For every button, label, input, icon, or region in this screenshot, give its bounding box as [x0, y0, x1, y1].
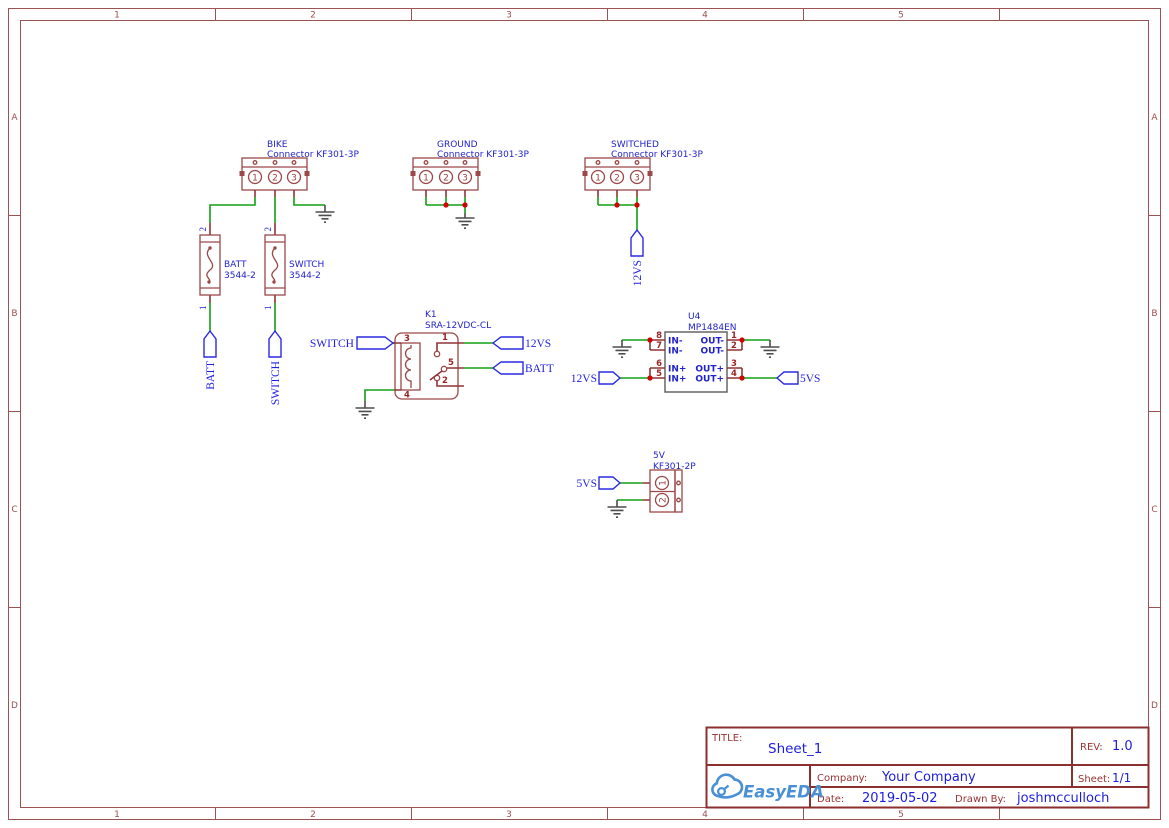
pin-number: 2 [198, 227, 208, 232]
junction-dot [634, 202, 639, 207]
pin-number: 2 [272, 174, 278, 184]
frame-col-label: 2 [310, 810, 316, 820]
pin-number: 1 [731, 331, 737, 341]
schematic-sheet: 1 2 3 4 5 1 2 3 4 5 A B C D A B C D [0, 0, 1169, 828]
frame-col-label: 4 [702, 810, 708, 820]
component-part: SRA-12VDC-CL [425, 321, 491, 331]
junction-dot [647, 337, 652, 342]
ground-symbols[interactable] [316, 205, 780, 517]
drawn-by-value: joshmcculloch [1016, 791, 1109, 806]
component-regulator-u4[interactable]: U4 MP1484EN 8 7 6 5 1 2 3 4 IN- IN- IN+ … [647, 312, 744, 392]
component-switched-connector[interactable]: SWITCHED Connector KF301-3P 1 2 3 [583, 140, 704, 208]
netflag-switch-fuse[interactable]: SWITCH [269, 331, 282, 405]
pin-number: 1 [198, 306, 208, 311]
wire-bike3-to-gnd[interactable] [294, 197, 325, 205]
frame-row-label: C [1151, 505, 1157, 515]
netflag-label: SWITCH [310, 338, 354, 350]
pin-number: 1 [423, 174, 429, 184]
pin-number: 2 [442, 376, 448, 386]
frame-col-label: 3 [506, 11, 512, 21]
junction-dot [614, 202, 619, 207]
netflag-label: 12VS [632, 260, 644, 286]
component-5v-connector[interactable]: 5V KF301-2P 1 2 [643, 451, 696, 512]
title-label: TITLE: [711, 733, 742, 744]
pin-name: OUT+ [695, 375, 724, 385]
netflag-u4-12vs[interactable]: 12VS [571, 372, 620, 385]
rev-value: 1.0 [1112, 739, 1133, 754]
pin-name: OUT- [700, 347, 724, 357]
netflag-relay-batt[interactable]: BATT [493, 362, 554, 375]
wire-relay4-to-gnd[interactable] [365, 390, 396, 401]
junction-dot [443, 202, 448, 207]
netflag-label: SWITCH [270, 361, 282, 405]
frame-col-label: 1 [114, 11, 120, 21]
pin-number: 5 [448, 358, 454, 368]
sheet-label: Sheet: [1078, 774, 1110, 785]
pin-number: 2 [659, 497, 669, 503]
frame-row-label: A [11, 113, 18, 123]
frame-col-label: 1 [114, 810, 120, 820]
ground-symbol[interactable] [316, 205, 335, 222]
component-ref: SWITCHED [611, 140, 659, 150]
pin-number: 6 [656, 359, 662, 369]
wire-bike1-to-fusebatt[interactable] [210, 197, 255, 223]
pin-number: 8 [656, 331, 662, 341]
frame-row-label: D [1151, 701, 1158, 711]
ground-symbol[interactable] [761, 340, 780, 357]
title-block: TITLE: Sheet_1 REV: 1.0 Company: Your Co… [707, 728, 1149, 808]
netflag-label: BATT [525, 363, 554, 375]
pin-number: 1 [252, 174, 258, 184]
frame-col-label: 4 [702, 11, 708, 21]
component-ref: K1 [425, 310, 437, 320]
easyeda-logo-text: EasyEDA [743, 783, 824, 802]
component-fuse-switch[interactable]: 2 1 SWITCH 3544-2 [263, 223, 324, 310]
date-value: 2019-05-02 [862, 791, 938, 806]
pin-number: 3 [291, 174, 297, 184]
sheet-value: 1/1 [1112, 771, 1131, 785]
junction-dot [647, 375, 652, 380]
netflag-u4-5vs[interactable]: 5VS [777, 372, 820, 385]
component-ref: BIKE [267, 140, 288, 150]
frame-col-label: 3 [506, 810, 512, 820]
pin-name: OUT+ [695, 365, 724, 375]
company-value: Your Company [881, 770, 976, 785]
company-label: Company: [817, 773, 867, 784]
netflag-label: BATT [205, 361, 217, 390]
component-ref: GROUND [437, 140, 478, 150]
frame-row-label: B [1151, 309, 1157, 319]
pin-name: IN+ [668, 375, 686, 385]
frame-row-label: C [11, 505, 17, 515]
component-fuse-batt[interactable]: 2 1 BATT 3544-2 [198, 223, 256, 310]
frame-row-label: D [11, 701, 18, 711]
ground-symbol[interactable] [608, 500, 627, 517]
netflag-label: 12VS [571, 373, 597, 385]
sheet-frame: 1 2 3 4 5 1 2 3 4 5 A B C D A B C D [9, 9, 1161, 821]
ground-symbol[interactable] [456, 213, 475, 228]
pin-number: 2 [263, 227, 273, 232]
pin-number: 3 [404, 334, 410, 344]
frame-row-label: A [1151, 113, 1158, 123]
frame-row-label: B [11, 309, 17, 319]
netflag-label: 12VS [525, 338, 551, 350]
pin-number: 2 [614, 174, 620, 184]
junction-dot [739, 337, 744, 342]
ground-symbol[interactable] [613, 340, 632, 357]
component-ref: BATT [224, 260, 247, 270]
schematic-canvas[interactable]: 1 2 3 4 5 1 2 3 4 5 A B C D A B C D [0, 0, 1169, 828]
netflag-relay-12vs[interactable]: 12VS [493, 337, 551, 350]
junction-dot [739, 375, 744, 380]
component-bike-connector[interactable]: BIKE Connector KF301-3P 1 2 3 [240, 140, 360, 197]
pin-number: 1 [263, 306, 273, 311]
pin-number: 3 [462, 174, 468, 184]
pin-number: 1 [595, 174, 601, 184]
sheet-title: Sheet_1 [768, 741, 822, 757]
pin-number: 1 [442, 333, 448, 343]
component-part: 3544-2 [289, 271, 321, 281]
pin-name: OUT- [700, 337, 724, 347]
netflag-switch-input[interactable]: SWITCH [310, 337, 393, 350]
pin-number: 2 [443, 174, 449, 184]
pin-number: 1 [659, 480, 669, 486]
frame-col-label: 5 [898, 810, 904, 820]
component-part: 3544-2 [224, 271, 256, 281]
component-ref: SWITCH [289, 260, 324, 270]
rev-label: REV: [1080, 742, 1103, 753]
netflag-12vs-switched[interactable]: 12VS [631, 230, 644, 286]
netflag-batt-fuse[interactable]: BATT [204, 331, 217, 390]
pin-name: IN+ [668, 365, 686, 375]
frame-dividers [9, 9, 1161, 820]
wires[interactable] [210, 197, 777, 500]
component-ref: 5V [653, 451, 666, 461]
netflag-conn5v-5vs[interactable]: 5VS [577, 477, 620, 490]
wire-switched-conn[interactable] [598, 197, 637, 230]
pin-number: 3 [634, 174, 640, 184]
component-relay-k1[interactable]: K1 SRA-12VDC-CL 3 4 1 5 2 [393, 310, 491, 401]
junction-dot [462, 202, 467, 207]
pin-number: 3 [731, 359, 737, 369]
component-ref: U4 [688, 312, 701, 322]
pin-number: 4 [731, 369, 737, 379]
easyeda-logo: EasyEDA [712, 775, 823, 802]
frame-col-label: 5 [898, 11, 904, 21]
pin-number: 7 [656, 341, 662, 351]
drawn-by-label: Drawn By: [955, 794, 1006, 805]
ground-symbol[interactable] [356, 401, 375, 418]
frame-col-label: 2 [310, 11, 316, 21]
netflag-label: 5VS [800, 373, 820, 385]
pin-number: 5 [656, 369, 662, 379]
netflag-label: 5VS [577, 478, 597, 490]
pin-number: 4 [404, 391, 410, 401]
pin-name: IN- [668, 347, 683, 357]
pin-number: 2 [731, 341, 737, 351]
component-ground-connector[interactable]: GROUND Connector KF301-3P 1 2 3 [411, 140, 530, 208]
pin-name: IN- [668, 337, 683, 347]
